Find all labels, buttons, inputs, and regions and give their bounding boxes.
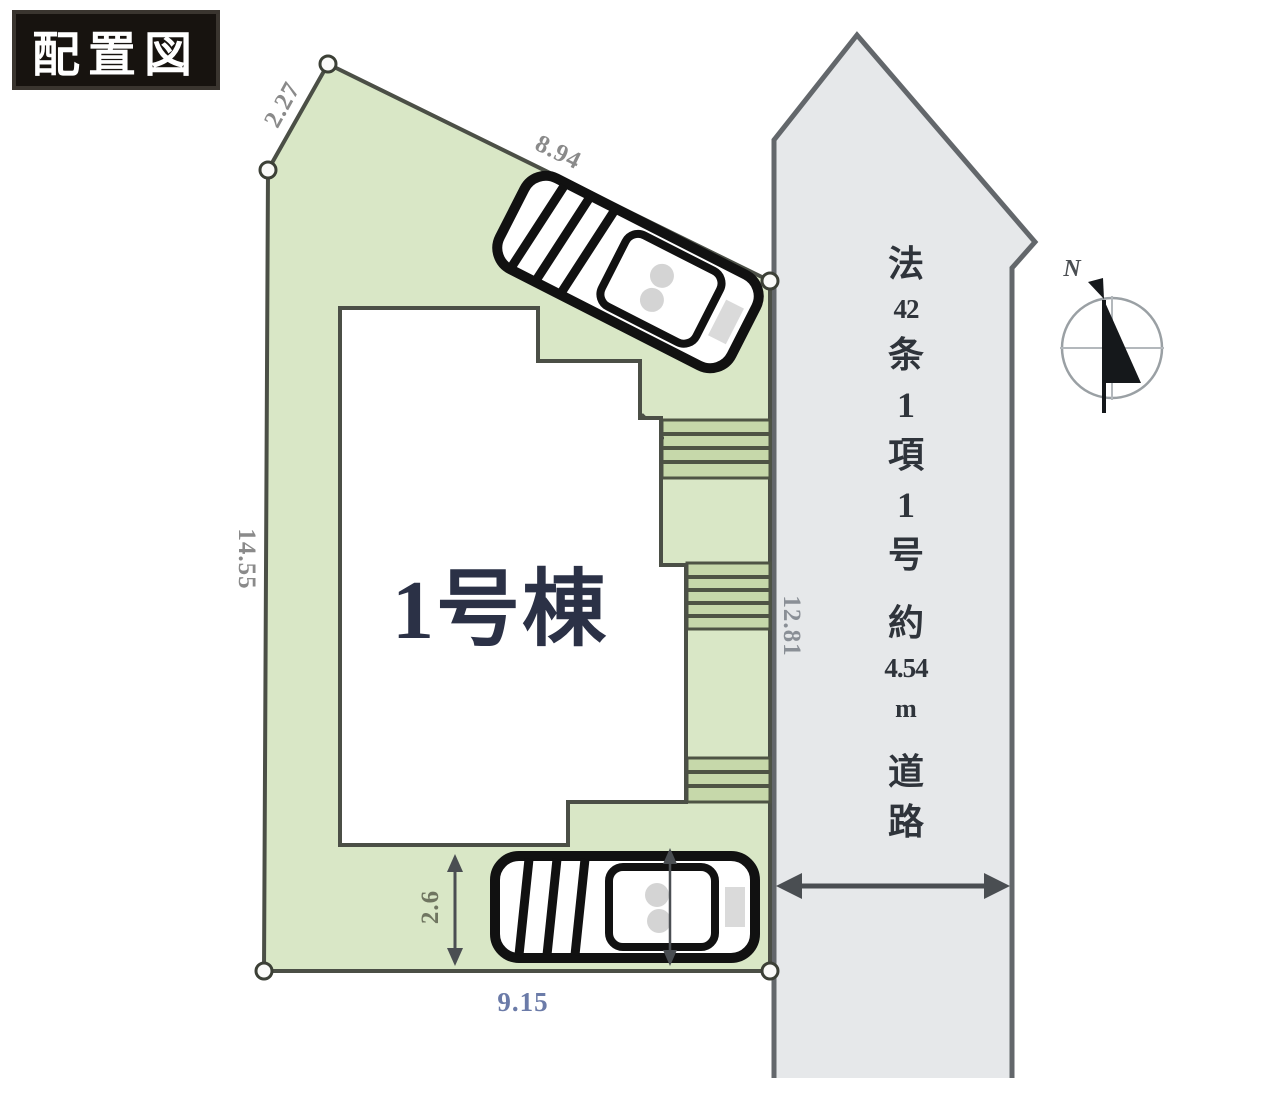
road-char: 1 [897, 487, 915, 523]
road-designation-label: 法 42 条 1 項 1 号 約 4.54 m 道 路 [876, 246, 936, 840]
road-char: 項 [888, 437, 924, 473]
dimension-bottom: 9.15 [473, 987, 573, 1018]
plan-title: 配置図 [32, 15, 200, 85]
road-char: 1 [897, 387, 915, 423]
plan-title-box: 配置図 [12, 10, 220, 90]
site-plan-page: 配置図 2.27 8.94 14.55 12.81 2.6 9.15 1号棟 法… [0, 0, 1280, 1109]
entrance-steps-middle [687, 563, 770, 629]
compass-icon [1060, 278, 1164, 413]
dimension-parking-depth: 2.6 [417, 877, 445, 937]
road-char: 法 [888, 246, 924, 282]
road-char: 号 [888, 537, 924, 573]
road-char: 約 [888, 605, 924, 641]
building-label: 1号棟 [350, 542, 650, 663]
road-char: 42 [894, 296, 919, 323]
road-char: 条 [888, 337, 924, 373]
car-icon-bottom [495, 856, 755, 958]
road-char: 4.54 [884, 655, 927, 682]
road-char: m [895, 696, 917, 722]
entrance-steps-lower [687, 758, 770, 802]
road-char: 路 [888, 804, 924, 840]
dimension-right: 12.81 [777, 576, 805, 676]
compass-north-label: N [1052, 256, 1092, 283]
dimension-left: 14.55 [232, 509, 260, 609]
road-char: 道 [888, 754, 924, 790]
